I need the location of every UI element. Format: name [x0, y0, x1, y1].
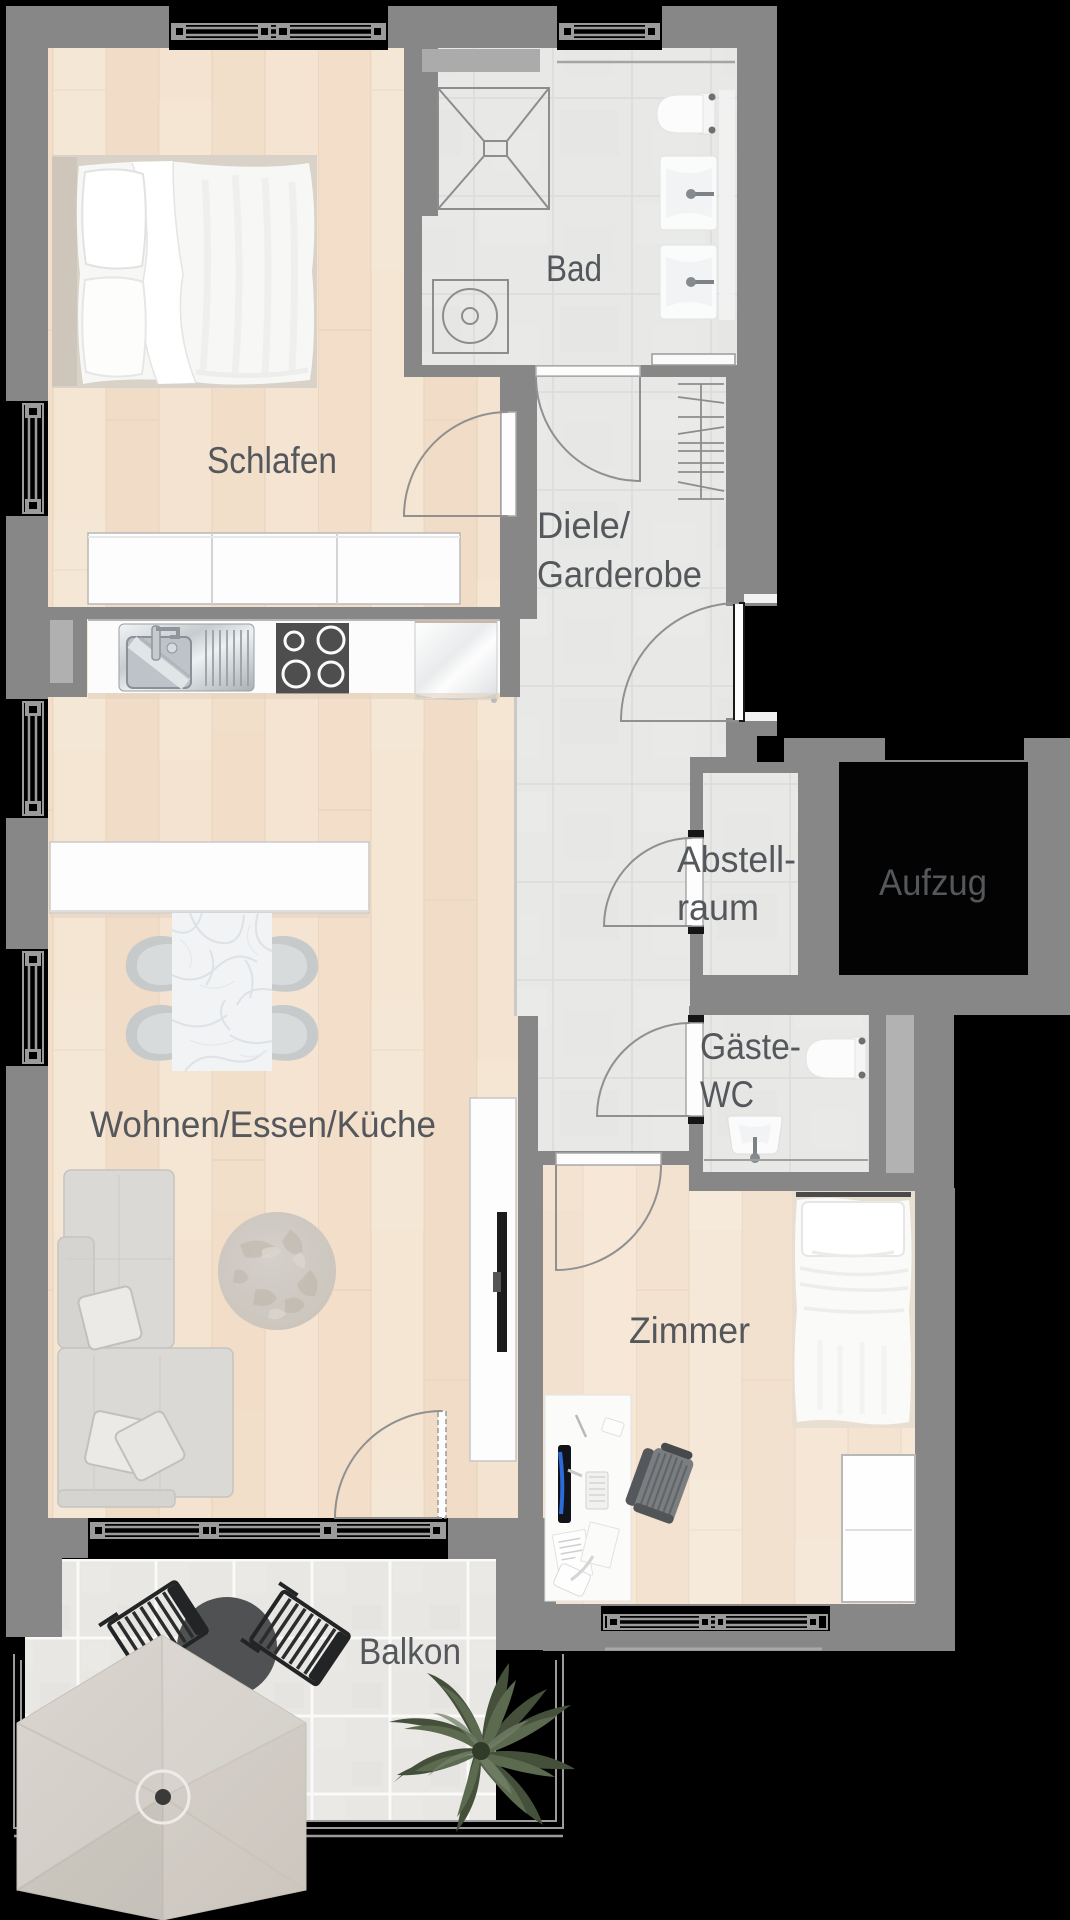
svg-text:Zimmer: Zimmer — [629, 1310, 750, 1351]
svg-text:raum: raum — [677, 887, 759, 928]
svg-text:Balkon: Balkon — [359, 1631, 461, 1672]
svg-text:Schlafen: Schlafen — [207, 440, 337, 481]
svg-text:Gäste-: Gäste- — [700, 1026, 801, 1067]
svg-text:Wohnen/Essen/Küche: Wohnen/Essen/Küche — [90, 1104, 436, 1145]
svg-text:Diele/: Diele/ — [537, 505, 631, 546]
svg-text:Garderobe: Garderobe — [537, 554, 702, 595]
svg-text:Bad: Bad — [546, 248, 602, 289]
svg-text:Aufzug: Aufzug — [879, 862, 987, 903]
svg-text:Abstell-: Abstell- — [677, 839, 796, 880]
svg-text:WC: WC — [700, 1074, 754, 1115]
